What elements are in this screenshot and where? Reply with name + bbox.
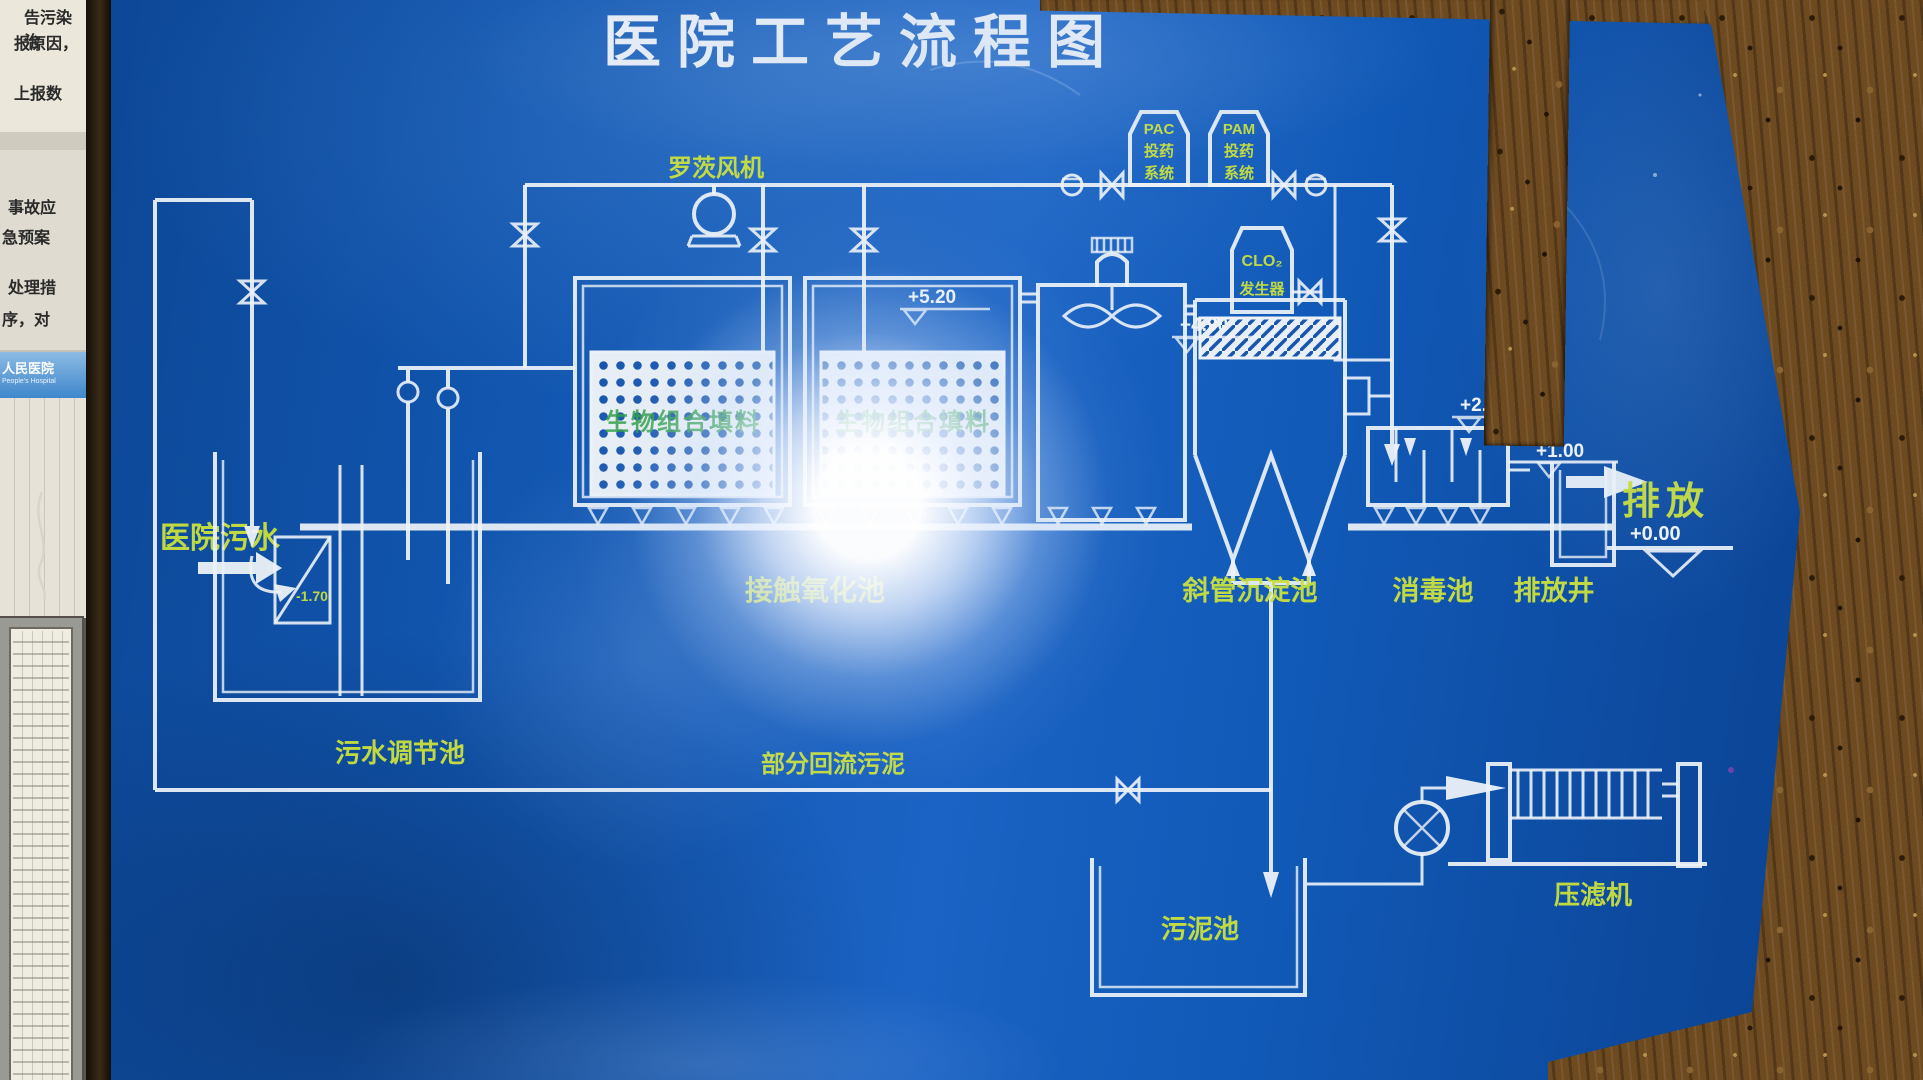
motor-icon [1097, 254, 1127, 287]
effluent-launder [1345, 378, 1369, 414]
clo2-line1: CLO₂ [1242, 253, 1283, 270]
discharge-well: 排放 排放井 +0.00 [1508, 462, 1733, 606]
flow-arrow [1460, 438, 1472, 456]
sedimentation-tank: 斜管沉淀池 [1182, 300, 1393, 872]
sedimentation-elevation: +4.90 [1180, 315, 1228, 336]
disinfection-label: 消毒池 [1393, 576, 1474, 606]
flow-arrow [1226, 558, 1240, 576]
blower-icon [694, 194, 734, 234]
screen-elevation: -1.70 [296, 588, 328, 604]
regulating-tank-label: 污水调节池 [335, 738, 465, 768]
photo-scene: 告污染治 报原因， 上报数 事故应 急预案 处理措 序，对 人民医院 Peopl… [0, 0, 1923, 1080]
pam-line2: 投药 [1224, 142, 1254, 160]
media-label: 生物组合填料 [835, 408, 991, 436]
pac-line1: PAC [1144, 121, 1175, 138]
hanging-string [38, 492, 44, 600]
sludge-tank: 污泥池 [1092, 858, 1305, 995]
sludge-tank-label: 污泥池 [1161, 914, 1239, 944]
sludge-return-loop: 部分回流污泥 [155, 200, 1271, 801]
lift-pump-icon [438, 388, 458, 408]
pam-line3: 系统 [1224, 164, 1254, 182]
sludge-pump [1307, 776, 1506, 884]
oxidation-label: 接触氧化池 [745, 575, 885, 606]
flow-arrow [1404, 438, 1416, 456]
mixing-tank [1020, 238, 1195, 520]
flow-arrow [1263, 872, 1279, 898]
flow-arrow [1446, 776, 1506, 800]
inlet-works: 医院污水 -1.70 [160, 521, 330, 623]
filter-press: 压滤机 [1448, 764, 1707, 910]
oxidation-tanks: 生物组合填料 生物组合填料 接触氧化池 [575, 278, 1020, 606]
pac-line3: 系统 [1144, 164, 1174, 182]
inlet-label: 医院污水 [160, 521, 281, 555]
board-scratches [930, 62, 1734, 773]
clo2-line2: 发生器 [1238, 280, 1285, 298]
diagram-title: 医院工艺流程图 [603, 10, 1121, 75]
filter-press-label: 压滤机 [1554, 880, 1632, 910]
roots-blower: 罗茨风机 [668, 154, 764, 246]
datum-symbol [1646, 551, 1700, 576]
flow-arrow [1302, 558, 1316, 576]
pam-line1: PAM [1223, 121, 1255, 138]
discharge-label: 排放 [1622, 481, 1710, 523]
lift-pump-icon [398, 382, 418, 402]
pac-line2: 投药 [1144, 142, 1174, 160]
media-label: 生物组合填料 [605, 408, 761, 436]
inlet-arrow [198, 552, 282, 584]
discharge-elevation: +0.00 [1630, 523, 1681, 545]
well-label: 排放井 [1514, 575, 1595, 606]
oxidation-elevation: +5.20 [908, 287, 956, 308]
sludge-return-label: 部分回流污泥 [761, 750, 905, 778]
sedimentation-label: 斜管沉淀池 [1182, 575, 1318, 606]
process-flow-diagram: 医院工艺流程图 罗茨风机 PAC 投药 系统 [0, 0, 1923, 1080]
board-frame-middle-bar [1484, 0, 1570, 447]
blower-label: 罗茨风机 [668, 154, 764, 182]
flow-arrow [1384, 444, 1400, 466]
magenta-speck [1728, 767, 1734, 773]
sludge-hoppers [1195, 455, 1345, 560]
press-plates [1518, 770, 1648, 818]
